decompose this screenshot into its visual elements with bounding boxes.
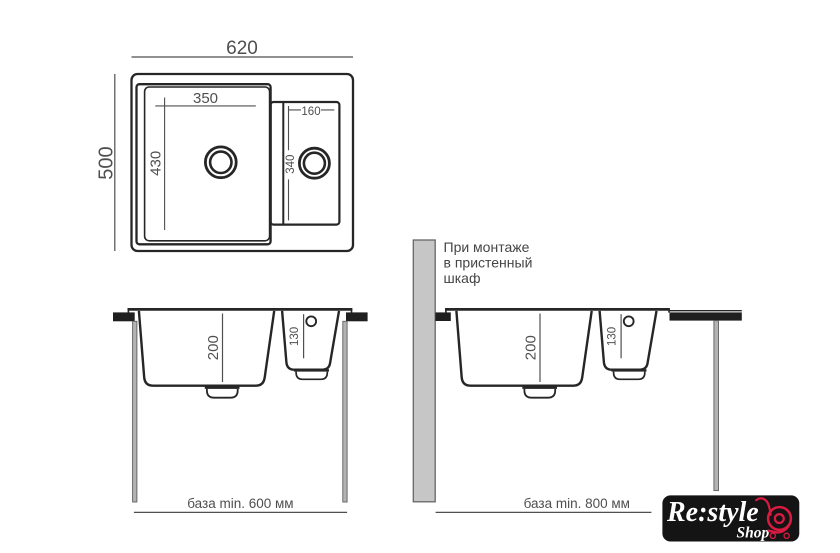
svg-text:350: 350 bbox=[193, 90, 218, 107]
svg-text:Shop: Shop bbox=[737, 525, 770, 542]
svg-text:340: 340 bbox=[285, 155, 297, 174]
svg-text:620: 620 bbox=[226, 38, 258, 59]
svg-text:база min. 600 мм: база min. 600 мм bbox=[187, 496, 293, 511]
svg-text:шкаф: шкаф bbox=[444, 270, 481, 286]
svg-text:Re:style: Re:style bbox=[666, 497, 759, 528]
svg-text:430: 430 bbox=[148, 151, 165, 176]
svg-text:500: 500 bbox=[95, 146, 117, 179]
svg-text:база min. 800 мм: база min. 800 мм bbox=[524, 496, 630, 511]
svg-text:в пристенный: в пристенный bbox=[444, 255, 533, 271]
svg-text:При монтаже: При монтаже bbox=[444, 239, 530, 255]
svg-text:160: 160 bbox=[301, 106, 320, 118]
